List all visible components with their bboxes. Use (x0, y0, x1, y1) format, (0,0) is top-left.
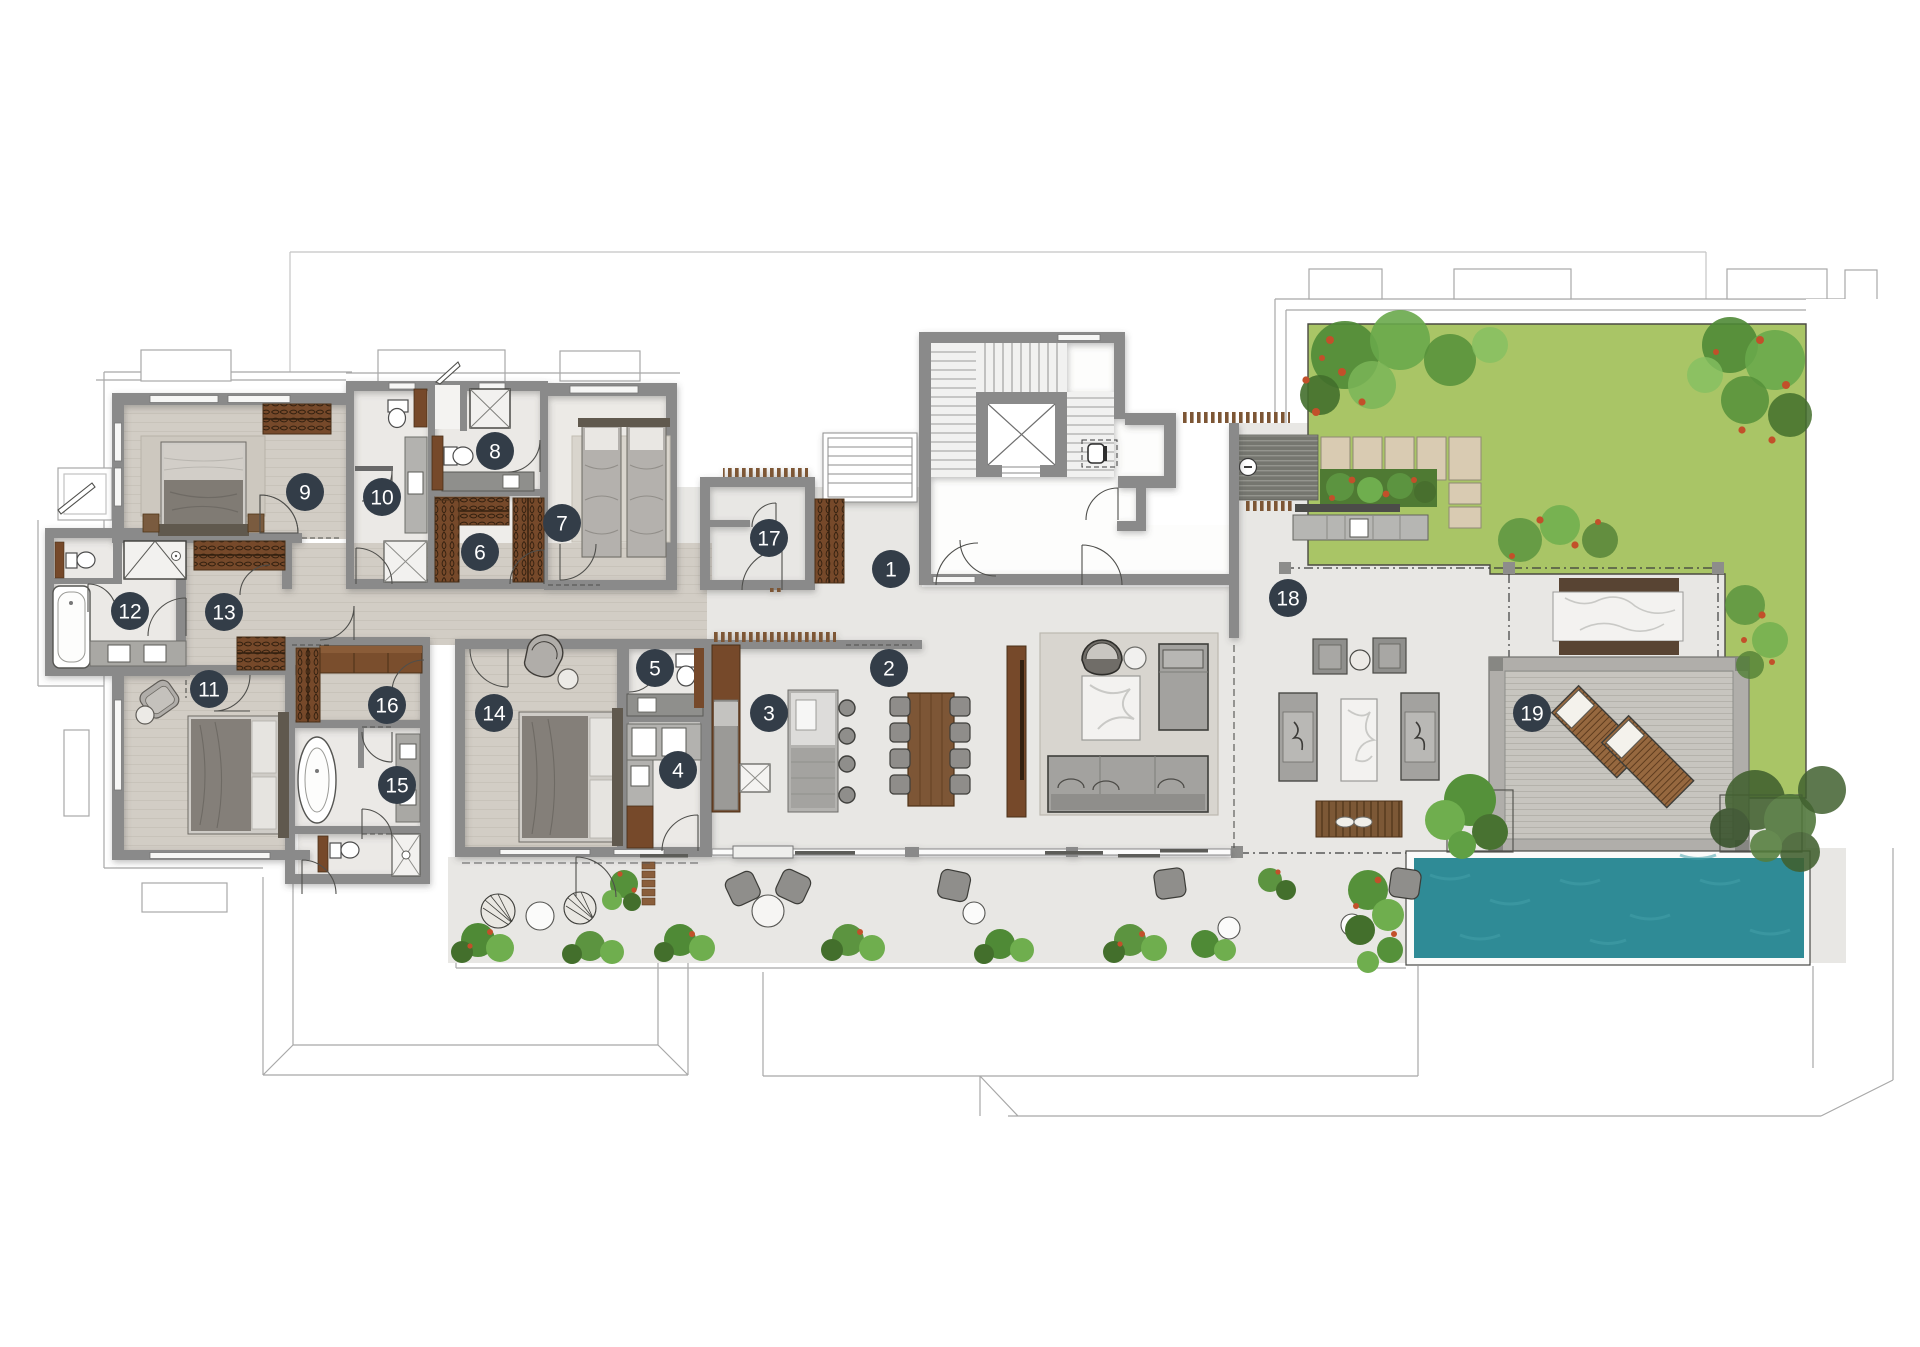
svg-text:18: 18 (1276, 588, 1299, 611)
svg-text:11: 11 (198, 679, 220, 702)
svg-text:17: 17 (757, 528, 780, 551)
svg-text:19: 19 (1520, 703, 1543, 726)
svg-text:4: 4 (672, 760, 684, 783)
svg-text:6: 6 (474, 542, 486, 565)
svg-text:10: 10 (370, 487, 393, 510)
svg-text:7: 7 (556, 513, 568, 536)
svg-text:15: 15 (385, 775, 408, 798)
svg-text:13: 13 (212, 602, 235, 625)
svg-text:14: 14 (482, 703, 506, 726)
svg-text:12: 12 (118, 601, 141, 624)
svg-text:8: 8 (489, 441, 501, 464)
svg-text:16: 16 (375, 695, 398, 718)
svg-text:9: 9 (299, 482, 311, 505)
svg-text:5: 5 (649, 658, 661, 681)
svg-text:2: 2 (883, 658, 895, 681)
svg-text:3: 3 (763, 703, 775, 726)
svg-text:1: 1 (885, 559, 897, 582)
